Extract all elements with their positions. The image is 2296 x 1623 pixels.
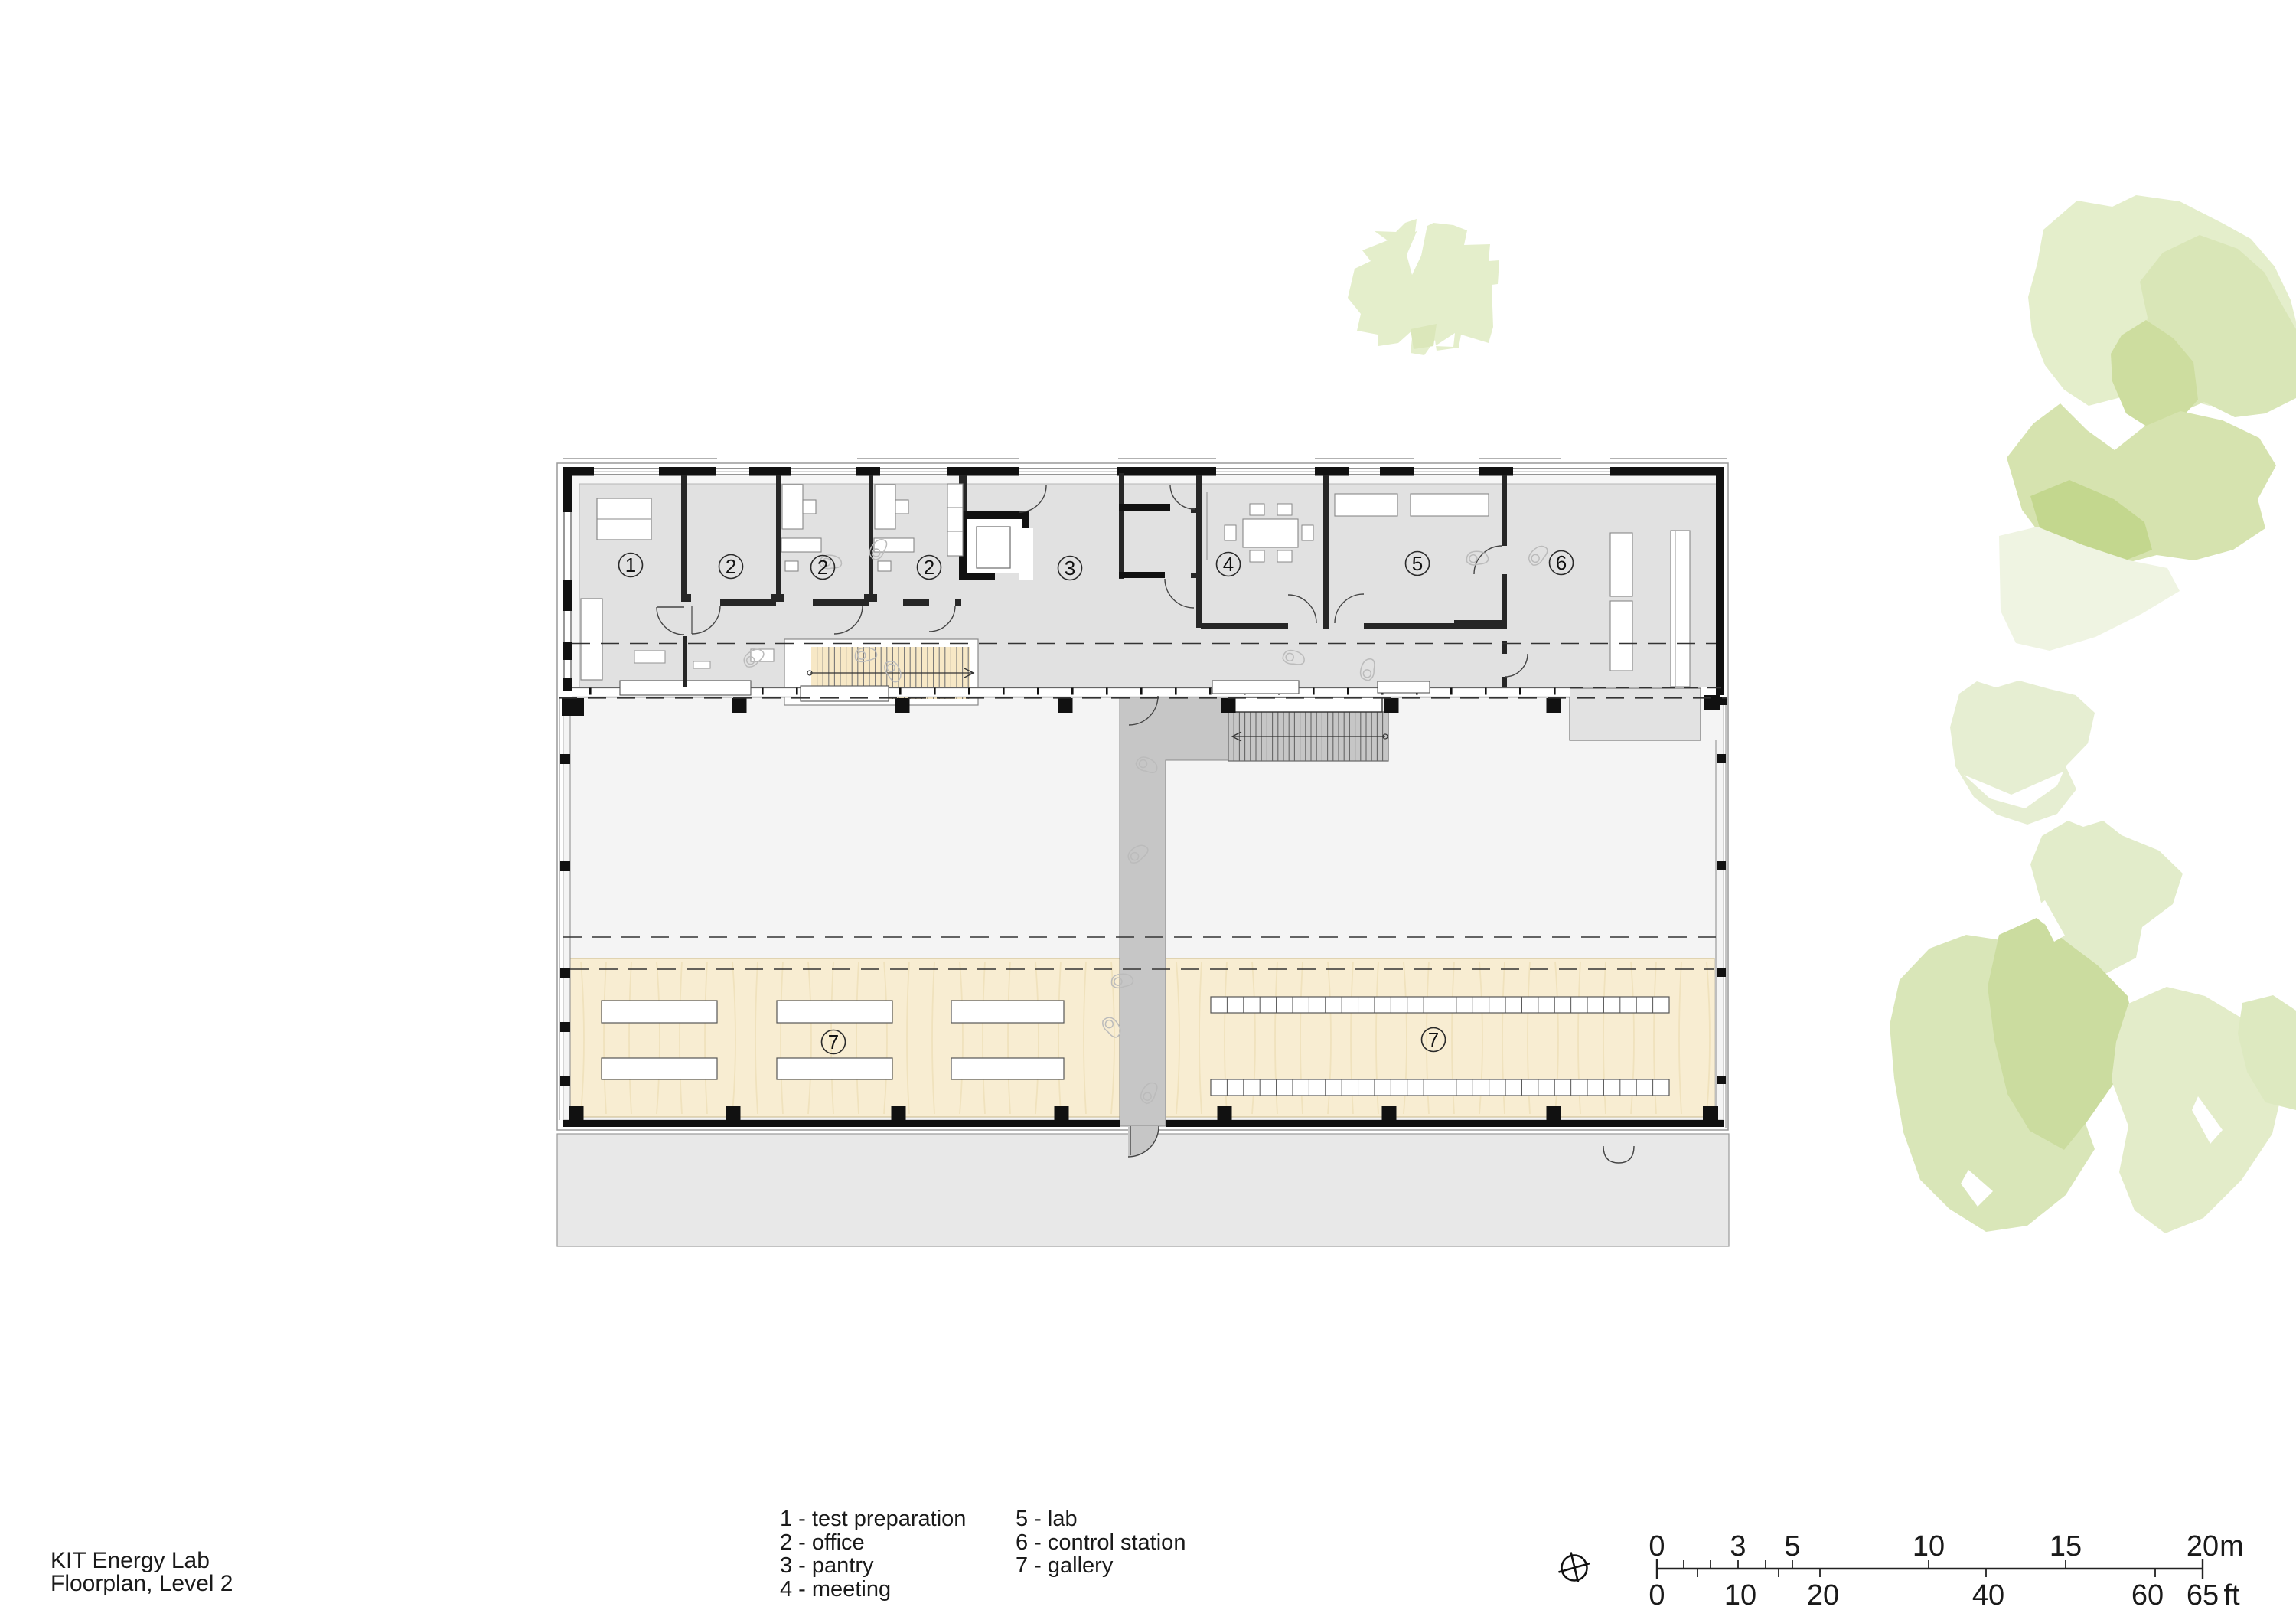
svg-text:3: 3	[1065, 557, 1075, 580]
svg-text:Floorplan, Level 2: Floorplan, Level 2	[51, 1571, 233, 1596]
svg-text:1: 1	[625, 554, 636, 576]
svg-text:5: 5	[1784, 1530, 1800, 1563]
svg-text:ft: ft	[2223, 1579, 2240, 1612]
svg-text:7: 7	[828, 1030, 839, 1053]
svg-text:40: 40	[1972, 1579, 2004, 1612]
svg-text:5: 5	[1412, 552, 1423, 575]
svg-text:65: 65	[2187, 1579, 2219, 1612]
svg-text:60: 60	[2131, 1579, 2164, 1612]
svg-text:5 - lab: 5 - lab	[1016, 1507, 1078, 1531]
svg-text:2: 2	[726, 555, 736, 578]
svg-text:1 - test preparation: 1 - test preparation	[780, 1507, 966, 1531]
svg-text:10: 10	[1724, 1579, 1756, 1612]
svg-text:3 - pantry: 3 - pantry	[780, 1553, 874, 1578]
svg-text:KIT Energy Lab: KIT Energy Lab	[51, 1548, 210, 1573]
svg-text:6 - control station: 6 - control station	[1016, 1530, 1186, 1555]
svg-text:4: 4	[1223, 553, 1234, 576]
svg-text:m: m	[2219, 1530, 2244, 1563]
svg-text:3: 3	[1730, 1530, 1746, 1563]
svg-text:7: 7	[1428, 1028, 1439, 1051]
svg-text:0: 0	[1649, 1530, 1665, 1563]
svg-text:20: 20	[2187, 1530, 2219, 1563]
svg-text:2 - office: 2 - office	[780, 1530, 865, 1555]
svg-text:7 - gallery: 7 - gallery	[1016, 1553, 1114, 1578]
svg-text:6: 6	[1556, 551, 1567, 574]
svg-text:10: 10	[1913, 1530, 1945, 1563]
svg-text:20: 20	[1807, 1579, 1839, 1612]
svg-text:2: 2	[924, 556, 934, 579]
svg-text:2: 2	[817, 556, 828, 579]
svg-text:4 - meeting: 4 - meeting	[780, 1577, 891, 1602]
svg-text:15: 15	[2050, 1530, 2082, 1563]
svg-text:0: 0	[1649, 1579, 1665, 1612]
